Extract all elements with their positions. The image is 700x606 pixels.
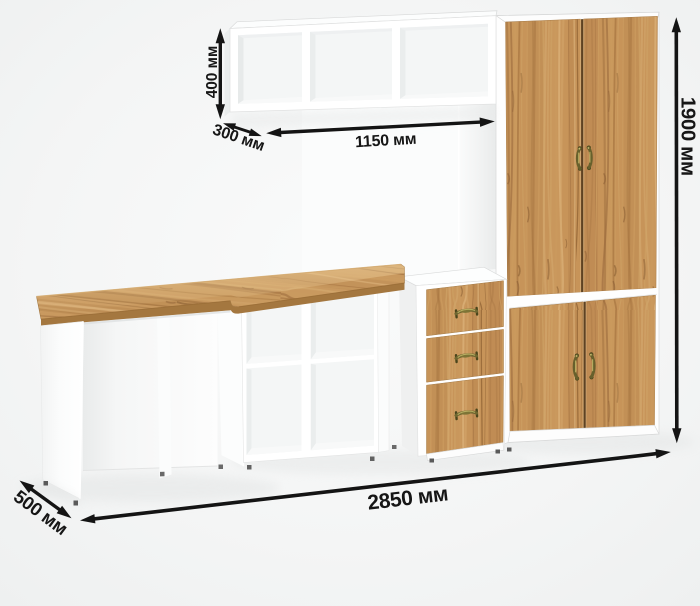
svg-text:1900 мм: 1900 мм (677, 97, 700, 176)
svg-text:400 мм: 400 мм (204, 46, 221, 99)
svg-text:1150 мм: 1150 мм (355, 131, 417, 151)
